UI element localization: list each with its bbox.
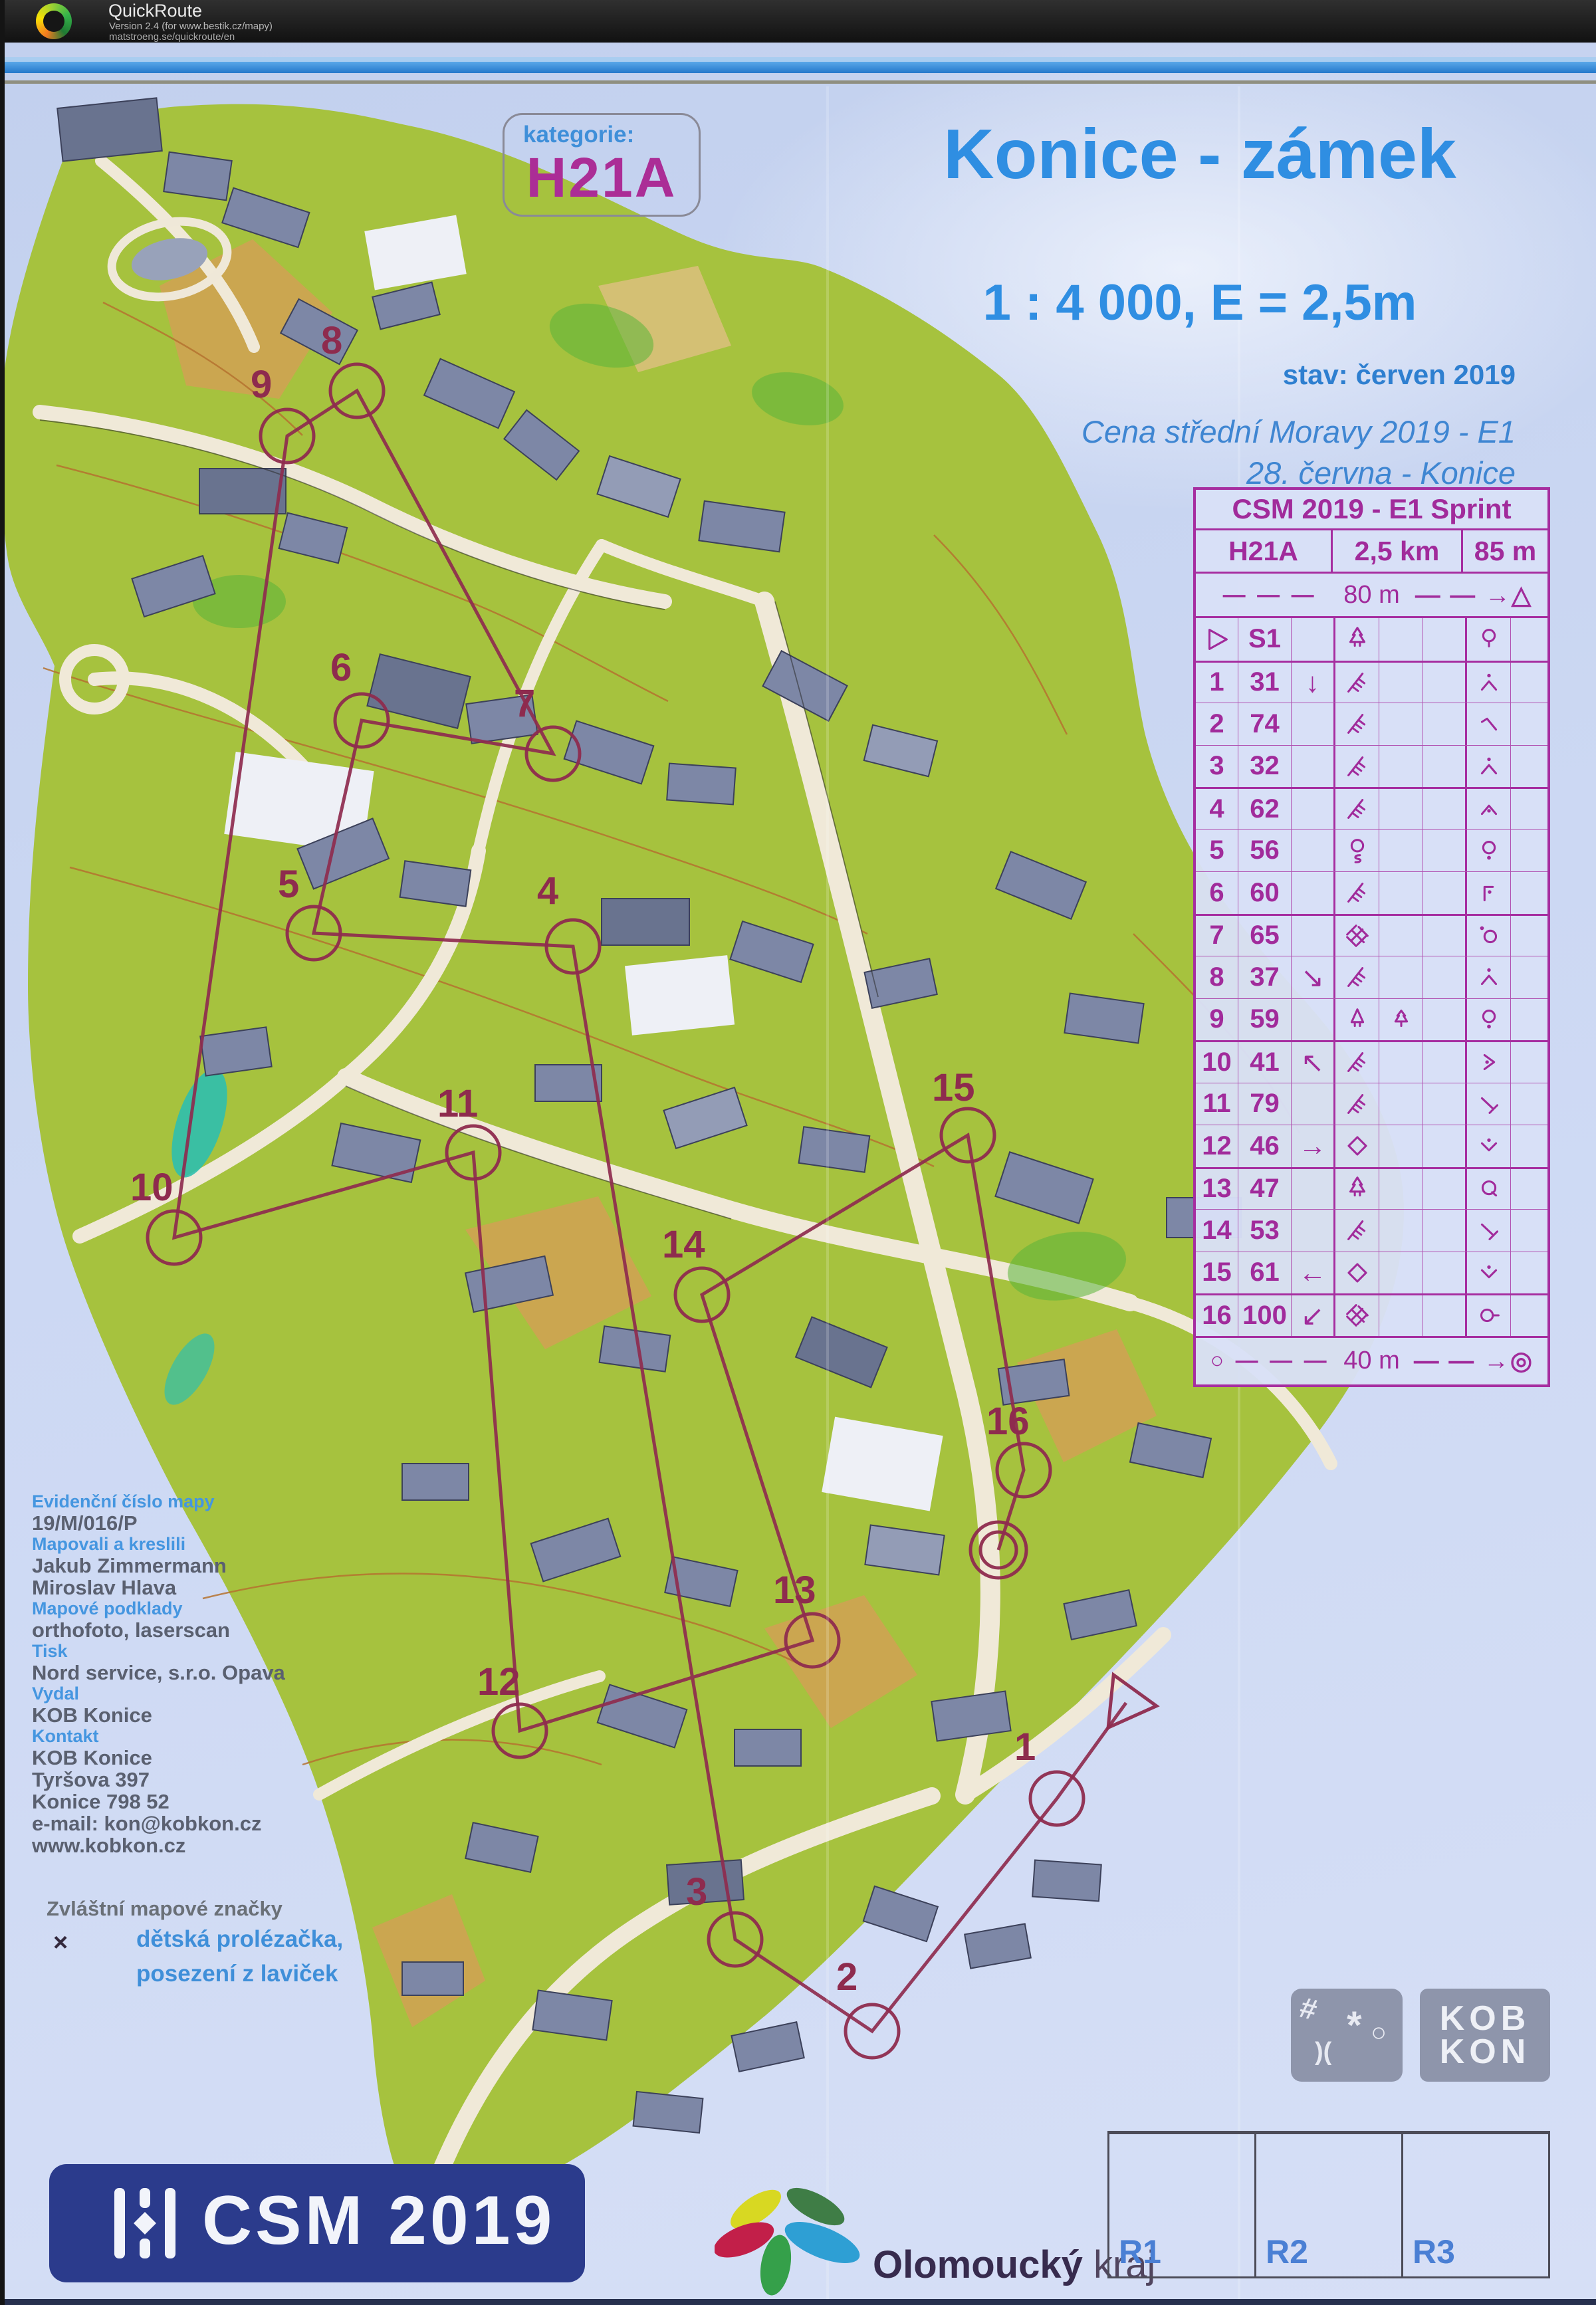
control-cell-d — [1335, 746, 1379, 788]
crosshatch-icon — [1342, 1300, 1373, 1331]
csm-logo-text: CSM 2019 — [202, 2181, 555, 2260]
control-cell-e — [1379, 746, 1423, 788]
control-cell-e — [1379, 663, 1423, 703]
control-cell-d — [1335, 1210, 1379, 1252]
control-cell-e — [1379, 916, 1423, 956]
control-cell-e — [1379, 1042, 1423, 1083]
control-cell-c — [1292, 1083, 1335, 1125]
control-cell-f — [1423, 1125, 1467, 1167]
control-cell-a: 15 — [1196, 1252, 1238, 1294]
control-cell-f — [1423, 872, 1467, 914]
control-cell-a: 3 — [1196, 746, 1238, 788]
control-cell-f — [1423, 1252, 1467, 1294]
control-cell-e — [1379, 956, 1423, 998]
control-cell-c — [1292, 746, 1335, 788]
control-cell-e — [1379, 1295, 1423, 1336]
direction-arrow: ↖ — [1301, 1046, 1324, 1079]
circle-dot-below-icon — [1474, 835, 1504, 866]
control-cell-h — [1511, 999, 1547, 1041]
stairs-icon — [1342, 877, 1373, 908]
direction-arrow: ↙ — [1301, 1299, 1324, 1332]
r-box-r1: R1 — [1109, 2134, 1256, 2276]
control-row: 1453 — [1196, 1209, 1547, 1252]
control-cell-c — [1292, 1169, 1335, 1210]
control-cell-h — [1511, 703, 1547, 745]
tree-icon — [1342, 1004, 1373, 1035]
control-number-14: 14 — [662, 1223, 705, 1266]
control-cell-c: ↘ — [1292, 956, 1335, 998]
control-cell-f — [1423, 956, 1467, 998]
control-cell-b: 60 — [1238, 872, 1292, 914]
control-cell-h — [1511, 916, 1547, 956]
control-cell-h — [1511, 789, 1547, 829]
app-site-url: matstroeng.se/quickroute/en — [109, 31, 235, 43]
control-cell-b: 46 — [1238, 1125, 1292, 1167]
photo-stripe-light — [0, 57, 1596, 62]
control-cell-a: 13 — [1196, 1169, 1238, 1210]
control-cell-g — [1467, 618, 1511, 661]
control-cell-b: 53 — [1238, 1210, 1292, 1252]
control-cell-a: 16 — [1196, 1295, 1238, 1336]
photo-stripe-blue — [0, 62, 1596, 73]
stairs-icon — [1342, 1047, 1373, 1077]
control-cell-g — [1467, 999, 1511, 1041]
control-cell-d — [1335, 830, 1379, 872]
control-row: 1347 — [1196, 1167, 1547, 1210]
control-cell-h — [1511, 830, 1547, 872]
control-cell-a: 2 — [1196, 703, 1238, 745]
control-number-13: 13 — [773, 1569, 816, 1612]
control-cell-a: 4 — [1196, 789, 1238, 829]
control-cell-d — [1335, 956, 1379, 998]
control-cell-f — [1423, 618, 1467, 661]
control-cell-f — [1423, 663, 1467, 703]
control-cell-f — [1423, 999, 1467, 1041]
control-cell-d — [1335, 1042, 1379, 1083]
control-cell-a: 14 — [1196, 1210, 1238, 1252]
control-cell-f — [1423, 703, 1467, 745]
control-cell-d — [1335, 999, 1379, 1041]
control-number-6: 6 — [330, 646, 352, 689]
start-distance: 80 m — [1343, 581, 1399, 609]
control-cell-b: 79 — [1238, 1083, 1292, 1125]
r-box-label: R2 — [1266, 2233, 1308, 2271]
control-cell-g — [1467, 1042, 1511, 1083]
control-number-10: 10 — [130, 1166, 173, 1209]
control-cell-g — [1467, 830, 1511, 872]
bend-icon — [1474, 709, 1504, 739]
credit-label: Evidenční číslo mapy — [32, 1491, 444, 1512]
stairs-icon — [1342, 1215, 1373, 1246]
control-cell-f — [1423, 1210, 1467, 1252]
credit-label: Vydal — [32, 1684, 444, 1704]
control-cell-h — [1511, 1125, 1547, 1167]
control-cell-h — [1511, 956, 1547, 998]
kobkon-text-bottom: KON — [1440, 2035, 1531, 2068]
control-row: 274 — [1196, 703, 1547, 745]
control-row: 1179 — [1196, 1083, 1547, 1125]
control-cell-h — [1511, 872, 1547, 914]
stairs-icon — [1342, 962, 1373, 992]
control-cell-c — [1292, 789, 1335, 829]
stairs-icon — [1342, 751, 1373, 782]
r-box-label: R3 — [1413, 2233, 1455, 2271]
control-cell-e — [1379, 1169, 1423, 1210]
dash-left: — — — — [1196, 582, 1343, 608]
control-row: 660 — [1196, 871, 1547, 914]
control-cell-f — [1423, 1295, 1467, 1336]
special-symbol-desc-1: dětská prolézačka, — [136, 1926, 343, 1953]
credit-value: Jakub Zimmermann — [32, 1555, 444, 1577]
map-symbols-badge: # * ○ )( — [1291, 1989, 1403, 2082]
r-box-label: R1 — [1119, 2233, 1161, 2271]
control-cell-f — [1423, 1042, 1467, 1083]
circle-dash-left: ○ — — — — [1196, 1348, 1343, 1374]
stairs-icon — [1342, 709, 1373, 739]
x-symbol-icon: × — [53, 1929, 68, 1957]
control-row: 1041↖ — [1196, 1040, 1547, 1083]
event-line-2: 28. června - Konice — [891, 455, 1516, 491]
control-row: 556 — [1196, 829, 1547, 872]
dot-angle-icon — [1474, 962, 1504, 992]
quickroute-logo-icon — [36, 3, 72, 39]
control-cell-b: 41 — [1238, 1042, 1292, 1083]
control-cell-g — [1467, 1252, 1511, 1294]
check-dot-icon — [1474, 1258, 1504, 1288]
control-cell-f — [1423, 916, 1467, 956]
parentheses-symbol-icon: )( — [1315, 2038, 1331, 2066]
control-cell-c — [1292, 916, 1335, 956]
control-cell-e — [1379, 830, 1423, 872]
control-cell-c: ↙ — [1292, 1295, 1335, 1336]
circle-tail-right-icon — [1474, 1300, 1504, 1331]
region-name-bold: Olomoucký — [873, 2243, 1083, 2286]
csm-logo-icon — [110, 2188, 183, 2258]
control-cell-b: 47 — [1238, 1169, 1292, 1210]
kobkon-club-logo: KOB KON — [1420, 1989, 1550, 2082]
credit-value: orthofoto, laserscan — [32, 1619, 444, 1641]
olomoucky-kraj-logo: Olomoucký kraj — [715, 2181, 864, 2298]
direction-arrow: ↘ — [1301, 961, 1324, 994]
r-box-r3: R3 — [1403, 2134, 1548, 2276]
category-label: kategorie: — [523, 122, 634, 148]
statue-icon — [1342, 835, 1373, 866]
stairs-icon — [1342, 1089, 1373, 1119]
control-cell-g — [1467, 1169, 1511, 1210]
control-cell-g — [1467, 1210, 1511, 1252]
dot-angle-icon — [1474, 751, 1504, 782]
spruce-icon — [1342, 1174, 1373, 1204]
control-cell-h — [1511, 1295, 1547, 1336]
control-number-12: 12 — [477, 1660, 520, 1703]
spruce-icon — [1342, 624, 1373, 655]
credit-value: www.kobkon.cz — [32, 1834, 444, 1856]
control-cell-d — [1335, 703, 1379, 745]
control-row: 959 — [1196, 998, 1547, 1041]
control-cell-h — [1511, 1210, 1547, 1252]
control-cell-e — [1379, 1125, 1423, 1167]
credit-label: Kontakt — [32, 1726, 444, 1747]
control-number-8: 8 — [321, 319, 342, 362]
diamond-icon — [1342, 1131, 1373, 1161]
sheet-title: CSM 2019 - E1 Sprint — [1196, 490, 1547, 530]
control-cell-d — [1335, 1125, 1379, 1167]
csm-2019-logo: CSM 2019 — [49, 2164, 585, 2282]
photo-left-edge — [0, 0, 5, 2305]
map-credits-block: Evidenční číslo mapy19/M/016/PMapovali a… — [32, 1491, 444, 1856]
asterisk-symbol-icon: * — [1347, 2003, 1362, 2048]
control-cell-h — [1511, 618, 1547, 661]
dash-right-finish-icon: — — →◎ — [1400, 1346, 1547, 1376]
control-cell-b: 74 — [1238, 703, 1292, 745]
credit-value: 19/M/016/P — [32, 1512, 444, 1534]
control-cell-g — [1467, 1295, 1511, 1336]
control-cell-f — [1423, 789, 1467, 829]
control-row: 1561← — [1196, 1252, 1547, 1294]
start-icon — [1202, 624, 1232, 655]
control-cell-c: ↓ — [1292, 663, 1335, 703]
control-cell-c — [1292, 999, 1335, 1041]
control-cell-c — [1292, 830, 1335, 872]
control-cell-b: 65 — [1238, 916, 1292, 956]
control-cell-e — [1379, 789, 1423, 829]
crosshatch-icon — [1342, 921, 1373, 951]
control-cell-b: S1 — [1238, 618, 1292, 661]
control-cell-f — [1423, 830, 1467, 872]
control-cell-g — [1467, 663, 1511, 703]
control-cell-b: 31 — [1238, 663, 1292, 703]
control-cell-a: 1 — [1196, 663, 1238, 703]
control-cell-e — [1379, 999, 1423, 1041]
stairs-icon — [1342, 794, 1373, 824]
control-cell-e — [1379, 1252, 1423, 1294]
control-cell-d — [1335, 1083, 1379, 1125]
control-cell-e — [1379, 1210, 1423, 1252]
control-cell-a: 9 — [1196, 999, 1238, 1041]
control-cell-c: ↖ — [1292, 1042, 1335, 1083]
corner-dot-icon — [1474, 877, 1504, 908]
control-row: 131↓ — [1196, 661, 1547, 703]
credit-value: Tyršova 397 — [32, 1769, 444, 1791]
credit-value: KOB Konice — [32, 1747, 444, 1769]
app-title: QuickRoute — [108, 1, 202, 21]
control-cell-a: 11 — [1196, 1083, 1238, 1125]
control-cell-d — [1335, 872, 1379, 914]
control-cell-e — [1379, 1083, 1423, 1125]
control-cell-d — [1335, 1295, 1379, 1336]
control-cell-d — [1335, 1169, 1379, 1210]
q-icon — [1474, 1174, 1504, 1204]
category-value: H21A — [505, 146, 699, 210]
dash-right-start-triangle-icon: — — →△ — [1400, 580, 1547, 610]
control-cell-g — [1467, 916, 1511, 956]
credit-value: Miroslav Hlava — [32, 1577, 444, 1598]
direction-arrow: → — [1299, 1130, 1327, 1162]
control-cell-b: 62 — [1238, 789, 1292, 829]
control-cell-c — [1292, 618, 1335, 661]
control-number-16: 16 — [986, 1400, 1030, 1443]
credit-value: Nord service, s.r.o. Opava — [32, 1662, 444, 1684]
control-cell-b: 59 — [1238, 999, 1292, 1041]
control-cell-d — [1335, 618, 1379, 661]
control-cell-d — [1335, 789, 1379, 829]
control-number-4: 4 — [537, 869, 558, 913]
control-cell-g — [1467, 703, 1511, 745]
control-cell-a: 7 — [1196, 916, 1238, 956]
control-cell-f — [1423, 746, 1467, 788]
control-row: 16100↙ — [1196, 1293, 1547, 1336]
gt-dot-icon — [1474, 1047, 1504, 1077]
control-cell-d — [1335, 663, 1379, 703]
control-cell-g — [1467, 789, 1511, 829]
direction-arrow: ← — [1299, 1257, 1327, 1289]
special-symbol-desc-2: posezení z laviček — [136, 1961, 338, 1987]
control-row: 765 — [1196, 914, 1547, 956]
control-number-15: 15 — [932, 1066, 975, 1109]
angle-dot-icon — [1474, 794, 1504, 824]
control-cell-b: 32 — [1238, 746, 1292, 788]
control-number-2: 2 — [836, 1955, 857, 1999]
control-cell-g — [1467, 956, 1511, 998]
control-cell-a: 12 — [1196, 1125, 1238, 1167]
control-cell-c — [1292, 872, 1335, 914]
control-cell-a: 5 — [1196, 830, 1238, 872]
line-t-icon — [1474, 1089, 1504, 1119]
app-version: Version 2.4 (for www.bestik.cz/mapy) — [109, 21, 273, 32]
control-cell-a: 8 — [1196, 956, 1238, 998]
control-cell-h — [1511, 1083, 1547, 1125]
hatch-symbol-icon: # — [1296, 1991, 1320, 2027]
dot-circle-icon — [1474, 921, 1504, 951]
control-cell-d — [1335, 916, 1379, 956]
control-number-1: 1 — [1014, 1725, 1036, 1769]
photo-bottom-edge — [0, 2299, 1596, 2305]
control-cell-b: 100 — [1238, 1295, 1292, 1336]
finish-distance: 40 m — [1343, 1347, 1399, 1375]
event-line-1: Cena střední Moravy 2019 - E1 — [891, 413, 1516, 450]
spruce-small-icon — [1386, 1004, 1417, 1035]
photo-stripe-gray — [0, 80, 1596, 84]
special-symbols-heading: Zvláštní mapové značky — [47, 1897, 283, 1921]
control-row: 837↘ — [1196, 956, 1547, 998]
category-box: kategorie: H21A — [503, 113, 701, 217]
check-dot-icon — [1474, 1131, 1504, 1161]
kobkon-text-top: KOB — [1440, 2002, 1531, 2035]
sheet-class: H21A — [1196, 530, 1333, 572]
circle-dot-below-icon — [1474, 1004, 1504, 1035]
quickroute-header: QuickRoute Version 2.4 (for www.bestik.c… — [0, 0, 1596, 43]
control-cell-f — [1423, 1169, 1467, 1210]
control-cell-g — [1467, 872, 1511, 914]
credit-label: Mapovali a kreslili — [32, 1534, 444, 1555]
sheet-finish-distance-row: ○ — — — 40 m — — →◎ — [1196, 1336, 1547, 1384]
credit-value: e-mail: kon@kobkon.cz — [32, 1812, 444, 1834]
control-number-7: 7 — [514, 682, 535, 725]
control-number-11: 11 — [437, 1082, 478, 1125]
control-cell-d — [1335, 1252, 1379, 1294]
control-cell-c: ← — [1292, 1252, 1335, 1294]
control-number-9: 9 — [251, 363, 272, 406]
line-t-icon — [1474, 1215, 1504, 1246]
dot-angle-icon — [1474, 667, 1504, 698]
olomoucky-kraj-petals-icon — [715, 2181, 864, 2298]
sheet-start-distance-row: — — — 80 m — — →△ — [1196, 574, 1547, 618]
map-status: stav: červen 2019 — [1064, 359, 1516, 391]
control-cell-h — [1511, 746, 1547, 788]
sheet-rows: S1131↓274332462556660765837↘9591041↖1179… — [1196, 618, 1547, 1336]
direction-arrow: ↓ — [1306, 667, 1319, 699]
credit-label: Tisk — [32, 1641, 444, 1662]
control-cell-b: 37 — [1238, 956, 1292, 998]
credit-label: Mapové podklady — [32, 1598, 444, 1619]
control-number-5: 5 — [278, 863, 299, 906]
control-cell-g — [1467, 746, 1511, 788]
control-row: 462 — [1196, 787, 1547, 829]
control-cell-a: 6 — [1196, 872, 1238, 914]
control-cell-a — [1196, 618, 1238, 661]
map-scale: 1 : 4 000, E = 2,5m — [884, 274, 1516, 332]
control-cell-f — [1423, 1083, 1467, 1125]
control-cell-h — [1511, 1169, 1547, 1210]
control-cell-b: 61 — [1238, 1252, 1292, 1294]
sheet-length: 2,5 km — [1333, 530, 1463, 572]
sheet-class-row: H21A 2,5 km 85 m — [1196, 530, 1547, 574]
credit-value: Konice 798 52 — [32, 1791, 444, 1812]
stairs-icon — [1342, 667, 1373, 698]
control-row: 1246→ — [1196, 1125, 1547, 1167]
control-cell-b: 56 — [1238, 830, 1292, 872]
control-cell-e — [1379, 703, 1423, 745]
control-cell-e — [1379, 618, 1423, 661]
credit-value: KOB Konice — [32, 1704, 444, 1726]
paper-crease — [826, 86, 829, 2300]
control-cell-h — [1511, 663, 1547, 703]
control-cell-c — [1292, 1210, 1335, 1252]
control-row: S1 — [1196, 618, 1547, 661]
map-title: Konice - zámek — [838, 114, 1562, 195]
r-boxes-table: R1R2R3 — [1107, 2131, 1550, 2278]
sheet-climb: 85 m — [1463, 530, 1547, 572]
circle-symbol-icon: ○ — [1371, 2018, 1387, 2048]
control-cell-g — [1467, 1083, 1511, 1125]
control-row: 332 — [1196, 745, 1547, 788]
control-cell-a: 10 — [1196, 1042, 1238, 1083]
r-box-r2: R2 — [1256, 2134, 1403, 2276]
control-cell-h — [1511, 1252, 1547, 1294]
control-cell-g — [1467, 1125, 1511, 1167]
control-cell-c — [1292, 703, 1335, 745]
control-cell-h — [1511, 1042, 1547, 1083]
diamond-icon — [1342, 1258, 1373, 1288]
circle-tail-down-icon — [1474, 624, 1504, 655]
control-description-sheet: CSM 2019 - E1 Sprint H21A 2,5 km 85 m — … — [1193, 487, 1550, 1387]
control-number-3: 3 — [686, 1870, 707, 1914]
control-cell-e — [1379, 872, 1423, 914]
control-cell-c: → — [1292, 1125, 1335, 1167]
